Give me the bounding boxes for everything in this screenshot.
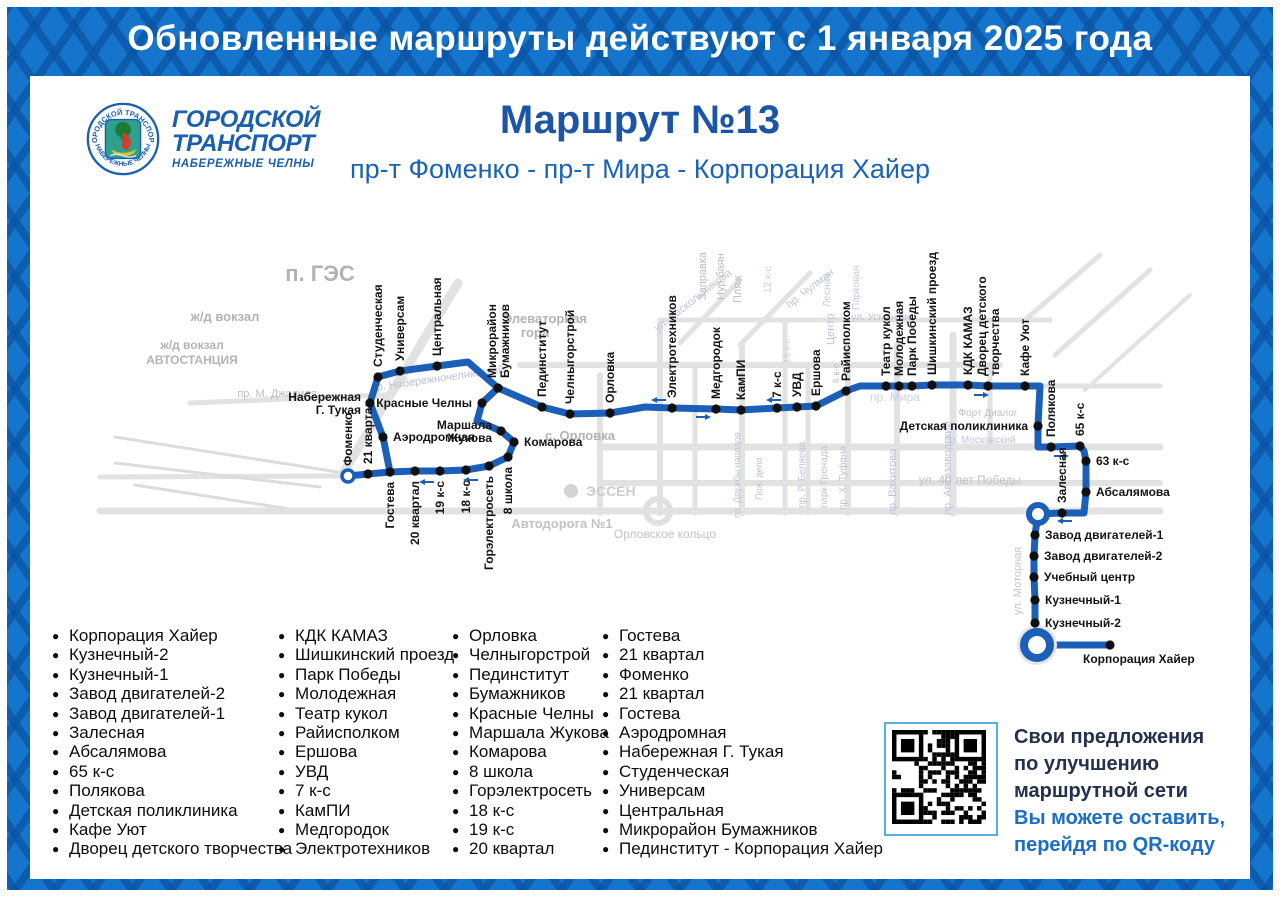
qr-module bbox=[977, 815, 981, 819]
map-stop-label: Студенческая bbox=[371, 284, 385, 367]
bullet-icon: ● bbox=[278, 802, 285, 821]
map-stop-label: Челныгорстрой bbox=[563, 310, 577, 404]
bullet-icon: ● bbox=[52, 724, 59, 743]
map-stop-label: Фоменко bbox=[341, 413, 355, 466]
qr-module bbox=[937, 739, 941, 743]
bullet-icon: ● bbox=[52, 743, 59, 762]
qr-module bbox=[973, 784, 977, 788]
map-stop bbox=[484, 461, 493, 470]
qr-module bbox=[950, 752, 954, 756]
bullet-icon: ● bbox=[52, 705, 59, 724]
qr-module bbox=[968, 770, 972, 774]
map-area-label: Лесная bbox=[822, 273, 833, 307]
qr-module bbox=[950, 788, 954, 792]
qr-module bbox=[941, 730, 945, 734]
stop-list-item: ●Кузнечный-1 bbox=[52, 665, 292, 684]
qr-module bbox=[968, 820, 972, 824]
map-direction-arrow bbox=[651, 397, 657, 403]
qr-module bbox=[928, 770, 932, 774]
map-stop bbox=[1029, 551, 1038, 560]
map-stop bbox=[736, 405, 745, 414]
map-stop bbox=[1029, 572, 1038, 581]
qr-module bbox=[901, 788, 905, 792]
map-stop bbox=[881, 381, 890, 390]
qr-module bbox=[932, 811, 936, 815]
qr-module bbox=[968, 788, 972, 792]
map-stop-label: Комарова bbox=[524, 435, 583, 449]
map-area-label: пр. Мира bbox=[870, 390, 920, 404]
map-stop-label: Гостева bbox=[383, 482, 397, 529]
qr-module bbox=[973, 797, 977, 801]
qr-module bbox=[977, 797, 981, 801]
map-stop-label: 21 квартал bbox=[361, 400, 375, 464]
map-stop-label: Медгородок bbox=[709, 326, 723, 399]
qr-caption-line: перейдя по QR-коду bbox=[1014, 832, 1264, 859]
bullet-icon: ● bbox=[452, 666, 459, 685]
map-area-label: Центр bbox=[825, 314, 837, 346]
bullet-icon: ● bbox=[278, 763, 285, 782]
stop-list-item: ●УВД bbox=[278, 762, 454, 781]
map-stop-label: 18 к-с bbox=[459, 480, 473, 514]
map-area-label: Нур баян bbox=[715, 253, 727, 300]
map-area-label: Орловское кольцо bbox=[614, 527, 717, 541]
map-stop-label: 20 квартал bbox=[408, 481, 422, 545]
qr-module bbox=[941, 811, 945, 815]
qr-code-image bbox=[892, 730, 986, 824]
map-stop-label: Завод двигателей-1 bbox=[1045, 528, 1164, 542]
qr-module bbox=[964, 788, 968, 792]
stop-list-item: ●Пединститут - Корпорация Хайер bbox=[602, 839, 883, 858]
bullet-icon: ● bbox=[452, 724, 459, 743]
qr-module bbox=[977, 775, 981, 779]
map-stop bbox=[963, 380, 972, 389]
content-card: ГОРОДСКОЙ ТРАНСПОРТ НАБЕРЕЖНЫЕ ЧЕЛНЫ ГОР… bbox=[30, 76, 1250, 879]
map-area-label: Пож. депо bbox=[754, 457, 764, 500]
stop-list-item: ●Универсам bbox=[602, 781, 883, 800]
bullet-icon: ● bbox=[278, 724, 285, 743]
qr-caption-line: маршрутной сети bbox=[1014, 778, 1264, 805]
qr-module bbox=[977, 806, 981, 810]
map-stop-label: Завод двигателей-2 bbox=[1044, 549, 1163, 563]
stop-list-item: ●Челныгорстрой bbox=[452, 645, 609, 664]
stop-list-item: ●Красные Челны bbox=[452, 704, 609, 723]
map-stop bbox=[811, 401, 820, 410]
qr-module bbox=[977, 820, 981, 824]
qr-module bbox=[928, 748, 932, 752]
qr-module bbox=[919, 766, 923, 770]
qr-module bbox=[955, 784, 959, 788]
stop-list-item: ●Залесная bbox=[52, 723, 292, 742]
qr-module bbox=[941, 793, 945, 797]
qr-module bbox=[923, 788, 927, 792]
map-stop-label: 65 к-с bbox=[1073, 402, 1087, 436]
map-stop-label: Залесная bbox=[1055, 447, 1069, 503]
map-stop bbox=[496, 426, 505, 435]
qr-module bbox=[946, 734, 950, 738]
bullet-icon: ● bbox=[452, 782, 459, 801]
map-stop bbox=[772, 403, 781, 412]
stop-list-item: ●65 к-с bbox=[52, 762, 292, 781]
qr-module bbox=[955, 770, 959, 774]
map-stop bbox=[1075, 441, 1084, 450]
qr-module bbox=[928, 775, 932, 779]
stop-list-item: ●Кафе Уют bbox=[52, 820, 292, 839]
qr-module bbox=[964, 766, 968, 770]
map-stop-label: Молодежная bbox=[892, 301, 906, 376]
qr-module bbox=[941, 766, 945, 770]
qr-module bbox=[959, 788, 963, 792]
map-area-label: пр. Р. Беляева bbox=[797, 441, 808, 508]
bullet-icon: ● bbox=[602, 821, 609, 840]
qr-module bbox=[950, 797, 954, 801]
stop-list-item: ●Полякова bbox=[52, 781, 292, 800]
bullet-icon: ● bbox=[52, 802, 59, 821]
stop-list-item: ●КДК КАМАЗ bbox=[278, 626, 454, 645]
qr-module bbox=[941, 779, 945, 783]
qr-module bbox=[919, 784, 923, 788]
map-stop-label: творчества bbox=[988, 308, 1002, 376]
qr-module bbox=[973, 761, 977, 765]
qr-module bbox=[946, 730, 950, 734]
qr-module bbox=[955, 806, 959, 810]
qr-module bbox=[946, 775, 950, 779]
map-stop-label: Орловка bbox=[603, 351, 617, 403]
stop-list-item: ●Горэлектросеть bbox=[452, 781, 609, 800]
map-stop bbox=[385, 467, 394, 476]
qr-module bbox=[946, 748, 950, 752]
route-subtitle: пр-т Фоменко - пр-т Мира - Корпорация Ха… bbox=[30, 154, 1250, 185]
map-area-label: Форт Диалог bbox=[959, 408, 1018, 419]
map-stop bbox=[565, 409, 574, 418]
qr-caption-line: Свои предложения bbox=[1014, 724, 1264, 751]
qr-module bbox=[977, 766, 981, 770]
qr-module bbox=[973, 775, 977, 779]
stop-list-item: ●Райисполком bbox=[278, 723, 454, 742]
bullet-icon: ● bbox=[52, 840, 59, 859]
stop-list-item: ●8 школа bbox=[452, 762, 609, 781]
bullet-icon: ● bbox=[602, 666, 609, 685]
qr-module bbox=[932, 815, 936, 819]
qr-module bbox=[937, 730, 941, 734]
qr-module bbox=[950, 734, 954, 738]
bullet-icon: ● bbox=[278, 685, 285, 704]
map-street bbox=[740, 273, 810, 345]
qr-module bbox=[950, 730, 954, 734]
qr-module bbox=[941, 752, 945, 756]
qr-module bbox=[928, 761, 932, 765]
bullet-icon: ● bbox=[278, 821, 285, 840]
bullet-icon: ● bbox=[452, 821, 459, 840]
qr-module bbox=[964, 739, 977, 752]
bullet-icon: ● bbox=[278, 646, 285, 665]
qr-module bbox=[932, 779, 936, 783]
qr-module bbox=[923, 806, 927, 810]
map-stop-label: Кафе Уют bbox=[1018, 319, 1032, 376]
qr-module bbox=[959, 779, 963, 783]
map-area-label: ж/д вокзал bbox=[190, 309, 260, 324]
qr-module bbox=[955, 788, 959, 792]
qr-module bbox=[937, 797, 941, 801]
stop-list-item: ●Детская поликлиника bbox=[52, 801, 292, 820]
bullet-icon: ● bbox=[52, 627, 59, 646]
map-stop bbox=[1020, 381, 1029, 390]
stop-list-item: ●Завод двигателей-2 bbox=[52, 684, 292, 703]
qr-module bbox=[932, 757, 936, 761]
qr-module bbox=[982, 761, 986, 765]
qr-module bbox=[937, 743, 941, 747]
map-stop-label: Центральная bbox=[430, 277, 444, 356]
map-stop bbox=[395, 366, 404, 375]
qr-module bbox=[964, 811, 968, 815]
bullet-icon: ● bbox=[602, 782, 609, 801]
bullet-icon: ● bbox=[52, 821, 59, 840]
map-direction-arrow bbox=[1057, 518, 1063, 524]
qr-module bbox=[892, 770, 896, 774]
qr-module bbox=[932, 788, 936, 792]
bullet-icon: ● bbox=[602, 743, 609, 762]
qr-module bbox=[919, 770, 923, 774]
map-street bbox=[1085, 295, 1190, 390]
map-stop bbox=[363, 469, 372, 478]
stop-list-item: ●Электротехников bbox=[278, 839, 454, 858]
stop-list-item: ●Молодежная bbox=[278, 684, 454, 703]
qr-caption-dark: Свои предложенияпо улучшениюмаршрутной с… bbox=[1014, 724, 1264, 805]
map-stop-label: Бумажников bbox=[498, 304, 512, 378]
map-stop bbox=[477, 398, 486, 407]
map-area-label: п. ГЭС bbox=[285, 261, 355, 286]
map-stop bbox=[509, 437, 518, 446]
map-stop bbox=[711, 404, 720, 413]
qr-module bbox=[950, 761, 954, 765]
map-stop bbox=[378, 432, 387, 441]
bullet-icon: ● bbox=[602, 802, 609, 821]
qr-module bbox=[968, 793, 972, 797]
bullet-icon: ● bbox=[452, 840, 459, 859]
qr-module bbox=[923, 766, 927, 770]
map-stop-label: 7 к-с bbox=[770, 371, 784, 398]
bullet-icon: ● bbox=[452, 705, 459, 724]
stop-list-item: ●Театр кукол bbox=[278, 704, 454, 723]
stop-list-item: ●Студенческая bbox=[602, 762, 883, 781]
qr-module bbox=[959, 815, 963, 819]
qr-module bbox=[937, 761, 941, 765]
bullet-icon: ● bbox=[52, 685, 59, 704]
map-area-label: пр. Вахитова bbox=[887, 448, 899, 515]
map-stop bbox=[373, 372, 382, 381]
map-stop-label: Электротехников bbox=[665, 295, 679, 398]
qr-module bbox=[923, 820, 927, 824]
qr-module bbox=[964, 775, 968, 779]
map-stop bbox=[605, 408, 614, 417]
map-area-label: пр. Автозаводский bbox=[942, 421, 954, 515]
map-area-label: 12 к-с bbox=[763, 266, 774, 293]
qr-module bbox=[919, 775, 923, 779]
qr-module bbox=[946, 761, 950, 765]
map-area-label: пр. Дружбы народов bbox=[732, 432, 742, 518]
qr-module bbox=[946, 752, 950, 756]
map-stop bbox=[927, 380, 936, 389]
qr-module bbox=[968, 775, 972, 779]
bullet-icon: ● bbox=[602, 705, 609, 724]
stop-list-item: ●Набережная Г. Тукая bbox=[602, 742, 883, 761]
qr-module bbox=[923, 757, 927, 761]
qr-module bbox=[910, 788, 914, 792]
qr-module bbox=[941, 802, 945, 806]
map-stop-label: Красные Челны bbox=[376, 396, 472, 410]
stop-column-4: ●Гостева●21 квартал●Фоменко●21 квартал●Г… bbox=[602, 626, 883, 859]
qr-module bbox=[968, 779, 972, 783]
bullet-icon: ● bbox=[278, 627, 285, 646]
map-stop-label: Г. Тукая bbox=[316, 403, 361, 417]
map-stop bbox=[894, 381, 903, 390]
qr-module bbox=[946, 802, 950, 806]
map-area-label: Заправка bbox=[697, 251, 709, 300]
qr-module bbox=[973, 788, 977, 792]
qr-module bbox=[946, 784, 950, 788]
bullet-icon: ● bbox=[452, 802, 459, 821]
map-stop bbox=[493, 383, 502, 392]
qr-module bbox=[892, 775, 896, 779]
qr-module bbox=[982, 779, 986, 783]
qr-module bbox=[950, 793, 954, 797]
bullet-icon: ● bbox=[452, 627, 459, 646]
map-stop-label: Микрорайон bbox=[485, 304, 499, 378]
qr-module bbox=[937, 770, 941, 774]
map-stop bbox=[1033, 421, 1042, 430]
map-stop bbox=[461, 465, 470, 474]
qr-module bbox=[928, 820, 932, 824]
qr-module bbox=[946, 779, 950, 783]
map-area-label: ж/д вокзал bbox=[159, 338, 223, 352]
stop-list-item: ●Дворец детского творчества bbox=[52, 839, 292, 858]
map-area-label: Пляж bbox=[732, 275, 744, 303]
map-stop-label: Дворец детского bbox=[975, 276, 989, 376]
stop-list-item: ●Абсалямова bbox=[52, 742, 292, 761]
map-stop bbox=[435, 466, 444, 475]
qr-module bbox=[968, 806, 972, 810]
qr-module bbox=[892, 788, 896, 792]
qr-module bbox=[901, 802, 914, 815]
map-area-label: 16 к-с bbox=[782, 339, 792, 363]
bullet-icon: ● bbox=[452, 685, 459, 704]
stop-list-item: ●Бумажников bbox=[452, 684, 609, 703]
map-stop bbox=[841, 386, 850, 395]
bullet-icon: ● bbox=[52, 646, 59, 665]
qr-module bbox=[932, 752, 936, 756]
map-stop bbox=[1057, 508, 1066, 517]
map-area-label: ул. 40 лет Победы bbox=[919, 473, 1021, 487]
qr-module bbox=[932, 761, 936, 765]
map-stop-label: Учебный центр bbox=[1044, 570, 1135, 584]
map-stop-label: УВД bbox=[790, 372, 804, 397]
bullet-icon: ● bbox=[278, 743, 285, 762]
qr-module bbox=[946, 811, 950, 815]
qr-module bbox=[946, 806, 950, 810]
qr-module bbox=[950, 770, 954, 774]
stop-list-item: ●21 квартал bbox=[602, 645, 883, 664]
bullet-icon: ● bbox=[602, 840, 609, 859]
qr-module bbox=[964, 815, 968, 819]
qr-module bbox=[959, 820, 963, 824]
qr-module bbox=[946, 770, 950, 774]
map-stop-label: Шишкинский проезд bbox=[925, 252, 939, 375]
stop-list-item: ●18 к-с bbox=[452, 801, 609, 820]
qr-module bbox=[950, 811, 954, 815]
map-stop-label: Детская поликлиника bbox=[900, 419, 1029, 433]
qr-module bbox=[946, 820, 950, 824]
map-stop bbox=[1081, 487, 1090, 496]
qr-module bbox=[968, 761, 972, 765]
map-stop-label: Универсам bbox=[393, 296, 407, 361]
banner-text: Обновленные маршруты действуют с 1 январ… bbox=[127, 19, 1152, 59]
map-direction-arrow bbox=[705, 414, 711, 420]
map-stop-label: Аэродромная bbox=[393, 430, 475, 444]
qr-module bbox=[959, 806, 963, 810]
map-stop-label: Театр кукол bbox=[879, 306, 893, 376]
map-terminal bbox=[1029, 505, 1047, 523]
stop-list-item: ●КамПИ bbox=[278, 801, 454, 820]
bullet-icon: ● bbox=[278, 705, 285, 724]
qr-module bbox=[977, 779, 981, 783]
qr-module bbox=[919, 779, 923, 783]
bullet-icon: ● bbox=[602, 627, 609, 646]
qr-module bbox=[928, 743, 932, 747]
map-stop-label: Абсалямова bbox=[1096, 485, 1170, 499]
qr-module bbox=[946, 739, 950, 743]
qr-module bbox=[982, 802, 986, 806]
stop-list-item: ●Медгородок bbox=[278, 820, 454, 839]
qr-module bbox=[923, 779, 927, 783]
qr-module bbox=[955, 775, 959, 779]
qr-module bbox=[901, 739, 914, 752]
bullet-icon: ● bbox=[602, 763, 609, 782]
map-street bbox=[135, 485, 290, 509]
stop-column-2: ●КДК КАМАЗ●Шишкинский проезд●Парк Победы… bbox=[278, 626, 454, 859]
map-stop bbox=[365, 398, 374, 407]
qr-module bbox=[955, 793, 959, 797]
stop-list-item: ●Центральная bbox=[602, 801, 883, 820]
qr-module bbox=[946, 793, 950, 797]
bullet-icon: ● bbox=[452, 646, 459, 665]
stop-list-item: ●Орловка bbox=[452, 626, 609, 645]
stop-column-3: ●Орловка●Челныгорстрой●Пединститут●Бумаж… bbox=[452, 626, 609, 859]
route-map: п. ГЭСж/д вокзалж/д вокзалАВТОСТАНЦИЯпр.… bbox=[40, 225, 1200, 695]
map-stop bbox=[410, 466, 419, 475]
qr-caption-line: Вы можете оставить, bbox=[1014, 805, 1264, 832]
map-stop-label: Полякова bbox=[1044, 379, 1058, 437]
map-stop bbox=[983, 381, 992, 390]
stop-list-item: ●Комарова bbox=[452, 742, 609, 761]
map-stop-label: Райисполком bbox=[839, 301, 853, 381]
map-stop bbox=[537, 402, 546, 411]
map-stop-label: КамПИ bbox=[734, 360, 748, 400]
map-area-label: пр. Х. Туфана bbox=[837, 445, 849, 510]
map-area-label: ул. Моторная bbox=[1012, 547, 1024, 615]
stop-list-item: ●Аэродромная bbox=[602, 723, 883, 742]
qr-module bbox=[973, 793, 977, 797]
map-stop-label: Набережная bbox=[288, 390, 361, 404]
bullet-icon: ● bbox=[602, 646, 609, 665]
bullet-icon: ● bbox=[52, 763, 59, 782]
map-area-label: ЭССЕН bbox=[586, 483, 636, 499]
qr-module bbox=[914, 761, 918, 765]
map-stop-label: Пединститут bbox=[535, 321, 549, 397]
map-stop-label: 63 к-с bbox=[1096, 454, 1130, 468]
qr-code bbox=[884, 722, 998, 836]
qr-module bbox=[941, 743, 945, 747]
map-stop bbox=[503, 452, 512, 461]
qr-caption-line: по улучшению bbox=[1014, 751, 1264, 778]
